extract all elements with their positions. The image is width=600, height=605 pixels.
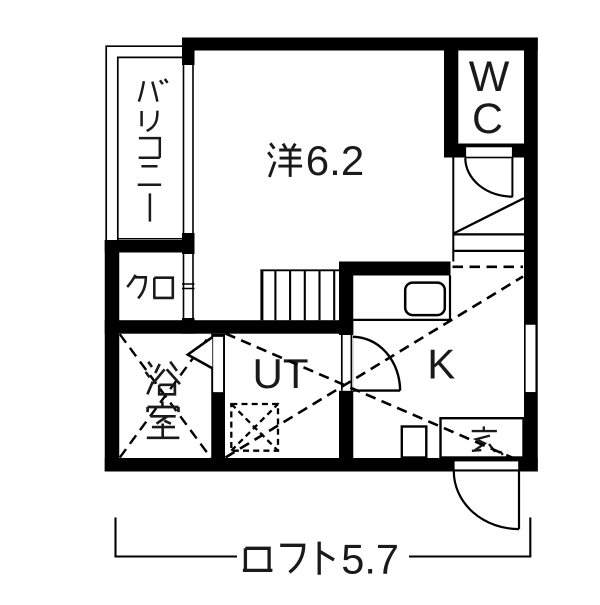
svg-text:6.2: 6.2: [306, 137, 364, 184]
svg-text:K: K: [427, 340, 455, 387]
svg-text:C: C: [472, 95, 503, 143]
svg-text:5.7: 5.7: [341, 536, 399, 583]
svg-text:W: W: [469, 53, 510, 101]
